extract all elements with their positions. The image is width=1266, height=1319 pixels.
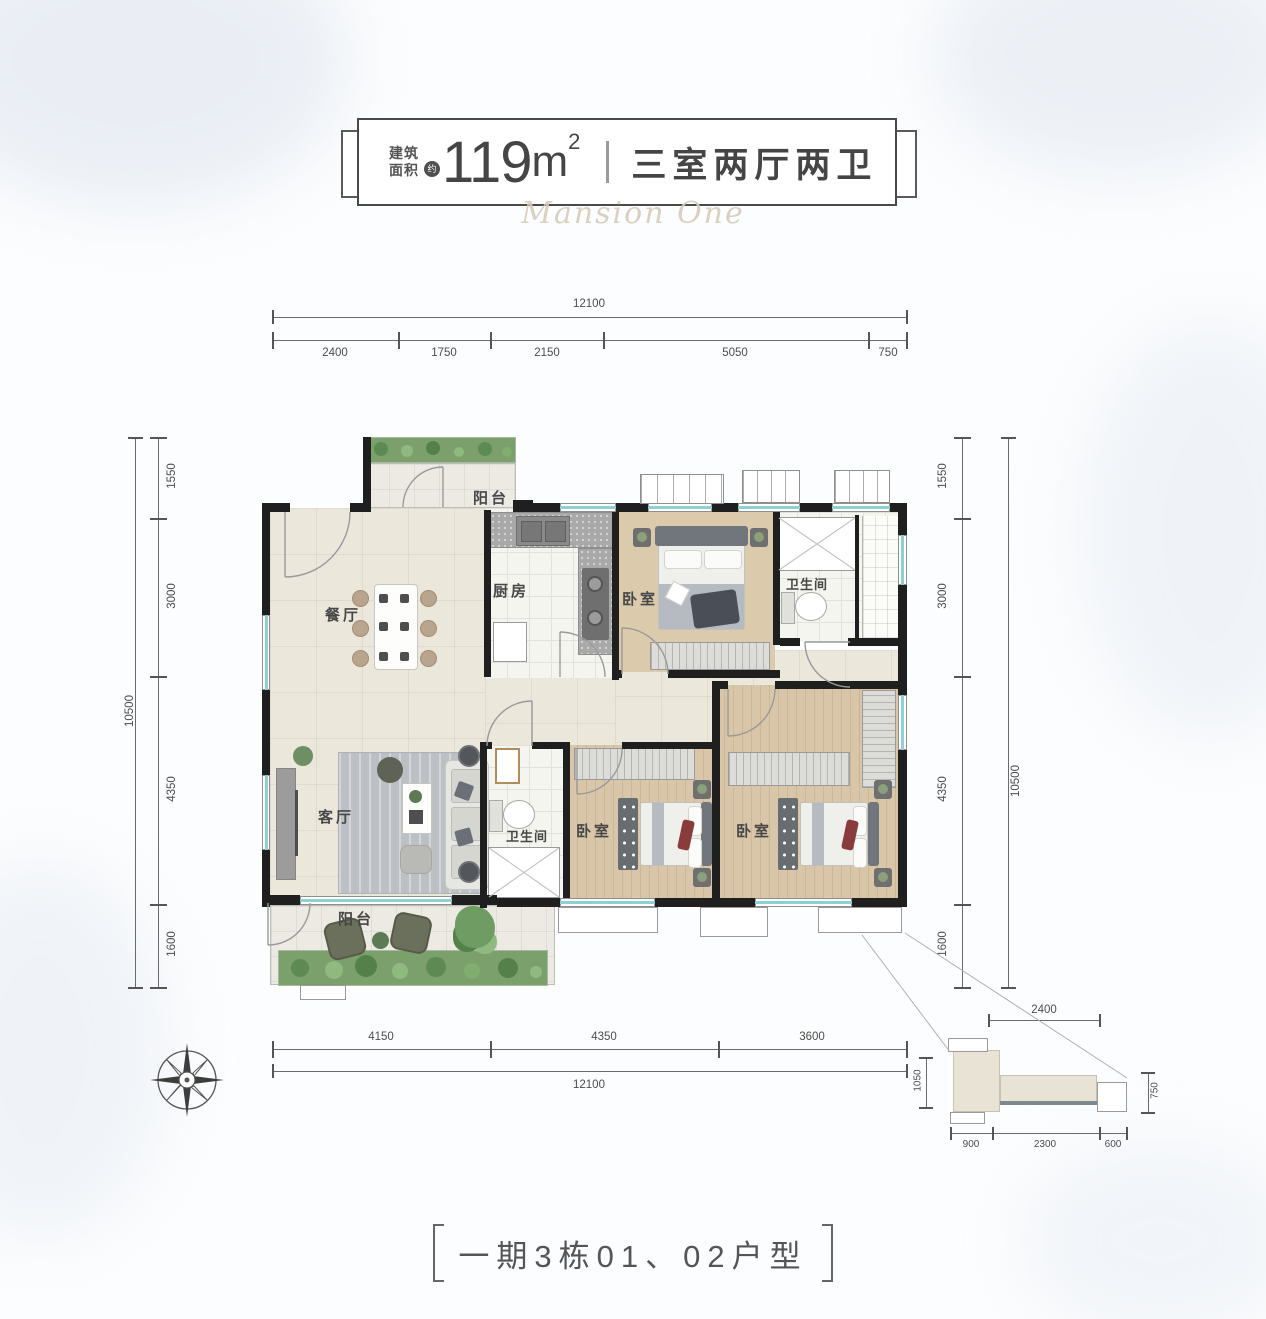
dim-tick (150, 518, 167, 520)
area-value: 119 (442, 129, 531, 196)
balcony-bottom-greenery (278, 950, 548, 986)
caption-bracket-left (433, 1224, 444, 1282)
caption-text: 一期3栋01、02户型 (458, 1231, 807, 1276)
dim-label: 4150 (351, 1031, 411, 1043)
caption-bracket-right (822, 1224, 833, 1282)
room-label-kitchen: 厨房 (493, 580, 529, 601)
dim-tick (272, 1064, 274, 1078)
area-prefix: 建筑 面积 (389, 145, 419, 180)
wall-segment (898, 512, 907, 535)
window-glass (560, 506, 616, 509)
background-wash (0, 860, 170, 1240)
wall-segment (480, 742, 487, 908)
dim-tick (150, 904, 167, 906)
side-table (458, 861, 480, 883)
dresser (778, 798, 798, 870)
toilet-bowl (503, 800, 535, 829)
room-label-dining: 餐厅 (325, 604, 361, 625)
layout-type-text: 三室两厅两卫 (631, 137, 877, 188)
wall-segment (622, 742, 712, 749)
wall-segment (855, 515, 859, 638)
dim-tick (988, 1014, 990, 1027)
window-glass (738, 506, 800, 509)
sink-basin (521, 521, 542, 542)
dim-line (926, 1057, 927, 1108)
nightstand (693, 868, 711, 887)
wall-segment (800, 503, 832, 512)
wall-segment (773, 512, 780, 645)
dim-tick (906, 310, 908, 324)
dim-line (272, 340, 907, 341)
wall-segment (668, 670, 780, 678)
bed-headboard (868, 802, 879, 866)
wall-segment (513, 500, 533, 512)
dim-label: 900 (941, 1139, 1001, 1150)
dim-label: 12100 (529, 298, 649, 310)
dim-label: 600 (1083, 1139, 1143, 1150)
plant-icon (455, 906, 495, 948)
approx-badge: 约 (424, 161, 440, 177)
dim-label: 2150 (517, 347, 577, 359)
wall-segment (612, 670, 622, 678)
tray (409, 810, 423, 824)
dresser (618, 798, 638, 870)
ac-platform (700, 907, 768, 937)
hallway-floor (485, 677, 615, 749)
wardrobe (574, 748, 695, 780)
title-divider (606, 141, 609, 183)
place-setting (379, 594, 388, 603)
dining-chair (352, 650, 369, 667)
dim-tick (1001, 437, 1016, 439)
dim-tick (954, 904, 971, 906)
nightstand (874, 780, 892, 799)
place-setting (400, 622, 409, 631)
plant-icon (374, 442, 388, 456)
wall-segment (497, 898, 560, 907)
bay-window (640, 474, 724, 504)
dim-label: 1550 (937, 446, 949, 506)
wall-segment (262, 850, 270, 907)
armchair-round (377, 757, 403, 783)
dim-label: 2300 (1015, 1139, 1075, 1150)
dim-label: 12100 (529, 1079, 649, 1091)
wall-segment (712, 681, 728, 689)
dim-tick (1099, 1014, 1101, 1027)
dim-tick (954, 987, 971, 989)
dim-line (272, 1071, 907, 1072)
window-glass (832, 506, 890, 509)
dim-tick (954, 676, 971, 678)
sink-basin (545, 521, 566, 542)
dim-tick (150, 437, 167, 439)
refrigerator (493, 622, 527, 662)
nightstand (874, 868, 892, 887)
nightstand (693, 780, 711, 799)
detail-box (1097, 1082, 1127, 1112)
dim-label: 2400 (1014, 1004, 1074, 1016)
window-glass (901, 535, 904, 585)
dim-tick (954, 518, 971, 520)
stove (582, 568, 609, 640)
toilet-tank (489, 800, 503, 832)
dim-line (1008, 437, 1009, 988)
wall-segment (712, 688, 720, 905)
dim-label: 2400 (305, 347, 365, 359)
window-glass (648, 506, 712, 509)
wall-segment (780, 638, 800, 646)
background-wash (930, 0, 1266, 180)
dim-label: 750 (858, 347, 918, 359)
room-label-living: 客厅 (318, 806, 354, 827)
place-setting (400, 652, 409, 661)
dim-label: 10500 (1010, 751, 1022, 811)
wall-segment (712, 503, 738, 512)
burner-icon (587, 610, 603, 626)
wall-segment (533, 503, 560, 512)
bed-blanket (812, 803, 824, 865)
dim-tick (128, 437, 143, 439)
room-label-bedroom-right: 卧室 (736, 820, 772, 841)
tv-console (276, 768, 296, 880)
wall-segment (655, 898, 755, 907)
nightstand (633, 528, 651, 547)
plant-icon (291, 959, 309, 977)
background-wash (1080, 320, 1266, 740)
bed-pillow (853, 838, 867, 868)
plant-icon (409, 790, 422, 803)
footer-caption: 一期3栋01、02户型 (0, 1224, 1266, 1282)
room-label-bedroom-top: 卧室 (622, 588, 658, 609)
dim-label: 750 (1150, 1061, 1161, 1121)
wall-segment (363, 437, 371, 510)
dim-tick (906, 1064, 908, 1078)
wall-segment (890, 503, 907, 512)
wall-segment (616, 503, 648, 512)
wall-segment (262, 503, 270, 615)
dim-tick (490, 1041, 492, 1058)
dim-tick (1001, 987, 1016, 989)
dining-chair (420, 620, 437, 637)
wall-segment (452, 895, 497, 905)
bed-throw (690, 589, 740, 629)
dim-tick (490, 332, 492, 349)
place-setting (400, 594, 409, 603)
dim-label: 3000 (166, 566, 178, 626)
dim-label: 10500 (124, 681, 136, 741)
window-glass (300, 899, 452, 902)
detail-window-glass (1000, 1101, 1097, 1105)
dim-tick (398, 332, 400, 349)
dim-tick (954, 437, 971, 439)
dim-label: 1600 (937, 914, 949, 974)
detail-step (950, 1112, 985, 1124)
wardrobe (650, 642, 770, 670)
detail-box (948, 1038, 988, 1052)
dim-label: 5050 (705, 347, 765, 359)
window-glass (265, 775, 268, 850)
bed-headboard (655, 526, 748, 546)
detail-structure (953, 1050, 1000, 1112)
kitchen-sink (516, 516, 570, 546)
coffee-table (402, 783, 432, 834)
title-box-right-tab (895, 130, 917, 198)
place-setting (379, 622, 388, 631)
wall-segment (563, 742, 570, 905)
bay-window (742, 470, 800, 503)
dining-chair (420, 590, 437, 607)
wall-segment (848, 638, 907, 646)
room-label-bedroom-mid: 卧室 (576, 820, 612, 841)
dim-tick (603, 332, 605, 349)
dim-label: 1550 (166, 446, 178, 506)
dim-label: 4350 (574, 1031, 634, 1043)
toilet-tank (781, 592, 795, 624)
dim-label: 3600 (782, 1031, 842, 1043)
dim-tick (718, 1041, 720, 1058)
burner-icon (587, 576, 603, 592)
dim-label: 1050 (913, 1051, 924, 1111)
area-prefix-line1: 建筑 (389, 145, 419, 163)
wall-segment (898, 750, 907, 907)
dim-label: 1600 (166, 914, 178, 974)
watermark-script: Mansion One (433, 196, 833, 231)
entry-step (300, 985, 346, 1000)
area-superscript: 2 (568, 129, 580, 155)
dim-line (272, 317, 907, 318)
dim-tick (128, 987, 143, 989)
plant-icon (293, 746, 313, 766)
wardrobe-tall (862, 690, 896, 788)
wall-segment (480, 742, 492, 749)
dim-tick (272, 310, 274, 324)
dim-label: 4350 (166, 759, 178, 819)
background-wash (0, 0, 350, 210)
side-table (458, 745, 480, 767)
dim-tick (906, 1041, 908, 1058)
window-glass (265, 615, 268, 690)
wall-segment (484, 510, 491, 677)
wall-segment (262, 690, 270, 775)
title-box: 建筑 面积 约 119 m 2 三室两厅两卫 (357, 118, 897, 206)
door-leaf (495, 748, 520, 784)
wall-segment (270, 895, 300, 905)
balcony-top-greenery (363, 437, 516, 463)
window-column (862, 516, 899, 638)
pouf (400, 845, 432, 874)
window-glass (755, 901, 852, 904)
bed-blanket (652, 803, 664, 865)
room-label-bath-top: 卫生间 (786, 574, 828, 593)
dim-line (988, 1020, 1100, 1021)
area-unit: m (531, 137, 568, 187)
dim-tick (272, 332, 274, 349)
floorplan-page: 建筑 面积 约 119 m 2 三室两厅两卫 Mansion One 12100… (0, 0, 1266, 1319)
dim-tick (272, 1041, 274, 1058)
dim-line (272, 1049, 907, 1050)
window-sill (558, 907, 658, 933)
room-label-balcony-bottom: 阳台 (338, 908, 374, 929)
bed-pillow (664, 550, 702, 569)
room-label-balcony-top: 阳台 (473, 487, 509, 508)
bay-window (834, 470, 890, 503)
dim-label: 3000 (937, 566, 949, 626)
toilet-bowl (795, 592, 827, 621)
nightstand (750, 528, 768, 547)
wardrobe (728, 752, 850, 786)
bed-pillow (704, 550, 742, 569)
lounge-chair (388, 910, 433, 955)
window-glass (560, 901, 655, 904)
dim-label: 1750 (414, 347, 474, 359)
dim-label: 4350 (937, 759, 949, 819)
dining-chair (420, 650, 437, 667)
window-glass (901, 695, 904, 750)
wall-segment (775, 681, 898, 689)
wall-segment (852, 898, 907, 907)
dim-tick (150, 987, 167, 989)
bed-headboard (701, 802, 712, 866)
dim-tick (150, 676, 167, 678)
shower-area (488, 847, 560, 898)
tv-screen (295, 790, 298, 856)
room-label-bath-mid: 卫生间 (506, 826, 548, 845)
shower-area (778, 517, 856, 571)
place-setting (379, 652, 388, 661)
area-prefix-line2: 面积 (389, 162, 419, 180)
wall-segment (612, 512, 619, 680)
plant-icon (372, 932, 389, 949)
window-sill (818, 907, 902, 933)
